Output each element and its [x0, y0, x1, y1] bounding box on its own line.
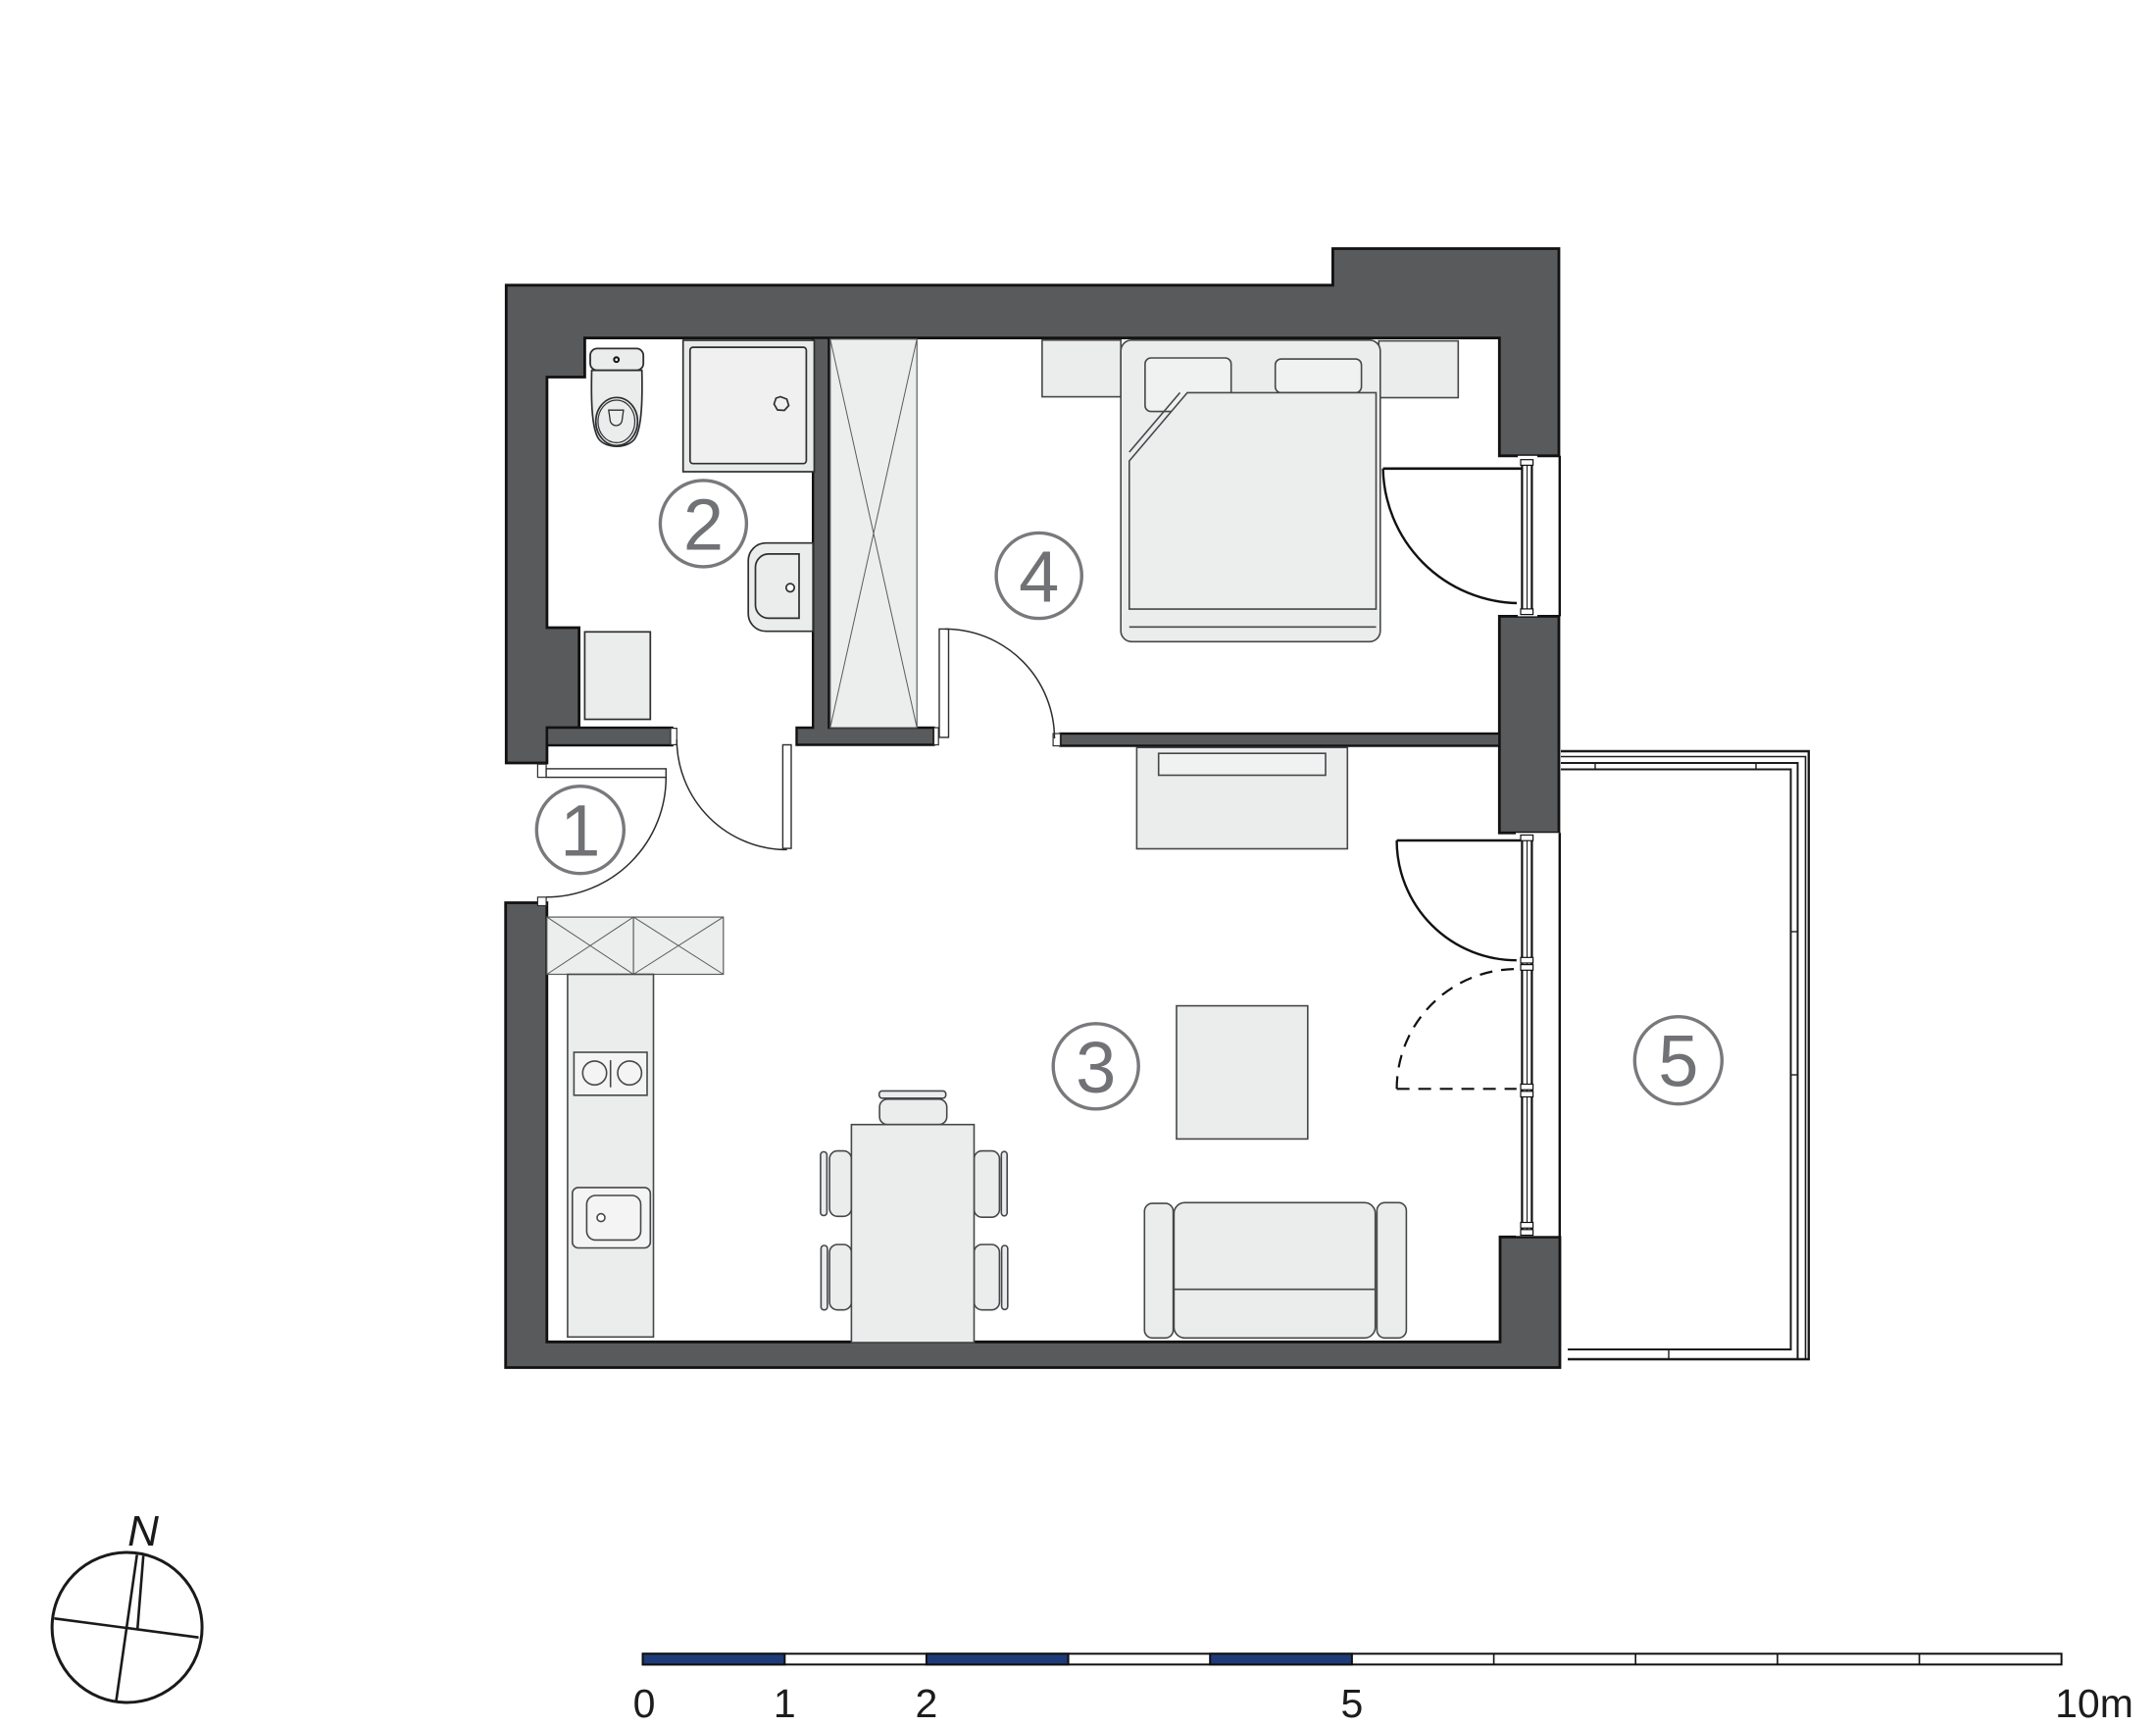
- svg-text:0: 0: [633, 1681, 656, 1726]
- svg-text:4: 4: [1019, 536, 1059, 618]
- svg-text:3: 3: [1076, 1027, 1116, 1108]
- svg-text:5: 5: [1658, 1021, 1698, 1102]
- svg-text:5: 5: [1340, 1681, 1363, 1726]
- svg-text:10m: 10m: [2055, 1681, 2133, 1726]
- svg-text:2: 2: [915, 1681, 937, 1726]
- svg-text:2: 2: [683, 483, 724, 565]
- svg-text:N: N: [127, 1507, 159, 1555]
- svg-text:1: 1: [560, 790, 600, 872]
- svg-text:1: 1: [774, 1681, 796, 1726]
